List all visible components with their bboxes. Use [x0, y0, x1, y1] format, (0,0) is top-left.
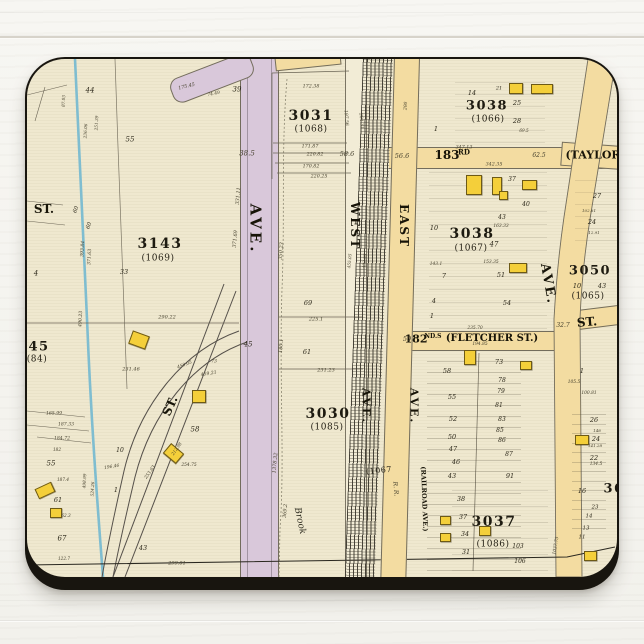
map-label-alt: (1086) — [477, 541, 510, 550]
map-label-meas: 143.1 — [430, 263, 443, 267]
map-label-meas: R. R. — [391, 481, 398, 496]
map-label-meas: 163.33 — [493, 225, 508, 229]
map-label-lot: 73 — [495, 359, 503, 366]
map-label-street: AVE. — [409, 388, 420, 424]
map-label-block: 3038 — [450, 227, 495, 241]
map-label-meas: 12.91 — [588, 231, 599, 235]
map-label-meas: 231.46 — [122, 368, 140, 373]
building-footprint — [509, 263, 527, 273]
map-label-block: 45 — [28, 341, 49, 354]
map-label-lot: 37 — [508, 177, 516, 183]
map-label-lot: 21 — [496, 87, 502, 92]
map-label-street: ND.S — [425, 334, 442, 340]
map-label-street: WEST — [349, 202, 361, 250]
map-label-lot: 52 — [449, 416, 457, 423]
map-label-meas: 342.35 — [486, 164, 503, 169]
map-label-meas: 172.38 — [303, 86, 320, 91]
map-label-meas: 235.70 — [467, 327, 482, 331]
map-label-meas: 184.72 — [54, 438, 70, 443]
map-label-lot: 4 — [432, 298, 436, 305]
map-label-meas: 87.03 — [62, 95, 67, 107]
map-label-lot: 55 — [47, 461, 56, 468]
map-label-street: AVE. — [248, 204, 263, 255]
building-footprint — [584, 551, 597, 561]
map-label-meas: 236.06 — [84, 124, 89, 139]
map-label-lot: 85 — [496, 428, 504, 434]
map-label-lot: 106 — [514, 559, 525, 565]
map-label-lot: 34 — [461, 531, 469, 538]
map-label-alt: (1066) — [472, 116, 505, 125]
building-footprint — [509, 83, 523, 94]
building-footprint — [440, 533, 451, 542]
map-label-street: AVE. — [361, 388, 372, 424]
building-footprint — [499, 191, 508, 200]
map-label-block: 3030 — [306, 407, 351, 421]
map-label-lot: 26 — [590, 417, 598, 424]
map-label-alt: (1085) — [311, 424, 344, 433]
mousepad: 3143(1069)3031(1068)3030(1085)3038(1066)… — [25, 57, 619, 590]
map-label-meas: 299.01 — [168, 562, 186, 567]
map-label-lot: 25 — [513, 100, 521, 107]
map-label-lot: 51 — [497, 272, 505, 279]
wood-plank-groove — [0, 36, 644, 38]
map-label-meas: 32.7 — [556, 323, 569, 329]
map-label-lot: 4 — [34, 271, 38, 278]
map-label-lot: 78 — [498, 378, 506, 384]
map-label-meas: 200 — [404, 102, 409, 111]
map-label-meas: 524.26 — [91, 482, 96, 497]
map-label-lot: 1 — [580, 368, 584, 375]
map-label-meas: 170.82 — [303, 166, 320, 171]
wood-plank-groove — [0, 620, 644, 621]
map-label-lot: 16 — [578, 488, 586, 495]
building-footprint — [520, 361, 532, 370]
map-label-lot: 14 — [468, 90, 476, 97]
map-label-alt: (84) — [27, 356, 47, 365]
map-label-meas: 347.13 — [456, 147, 473, 152]
map-label-meas: 225.1 — [309, 318, 323, 323]
map-label-meas: 153.35 — [483, 261, 498, 265]
map-label-lot: 81 — [495, 403, 503, 409]
map-label-meas: 38.5 — [239, 151, 255, 158]
map-label-street: (RAILROAD AVE.) — [420, 466, 429, 531]
map-label-lot: 37 — [459, 514, 467, 521]
map-label-lot: 67 — [58, 536, 67, 543]
map-label-alt: (1067) — [455, 245, 488, 254]
map-label-meas: 105.5 — [568, 381, 581, 385]
map-label-street: ST. — [576, 315, 597, 329]
map-label-lot: 46 — [452, 459, 460, 466]
map-label-block: 3050 — [569, 265, 611, 278]
map-label-lot: 10 — [573, 283, 581, 290]
map-label-lot: 43 — [448, 473, 456, 480]
map-label-meas: 197.56 — [342, 110, 348, 126]
lot-column-line — [473, 353, 479, 571]
wood-plank-groove — [0, 600, 644, 601]
map-label-lot: 28 — [513, 118, 521, 125]
map-label-meas: 490.23 — [79, 311, 84, 327]
building-footprint — [575, 435, 589, 445]
map-label-lot: 58 — [443, 368, 451, 375]
building-footprint — [440, 516, 451, 525]
map-label-meas: 393.84 — [81, 241, 86, 257]
map-label-lot: 13 — [583, 526, 590, 532]
map-label-lot: 61 — [303, 349, 311, 356]
map-label-lot: 14 — [586, 514, 593, 520]
map-label-meas: 122.7 — [58, 557, 70, 561]
map-label-lot: 31 — [462, 549, 470, 556]
map-label-meas: 165.99 — [46, 413, 62, 418]
map-label-lot: 24 — [588, 219, 596, 226]
map-label-lot: 55 — [448, 394, 456, 401]
map-label-alt: (1069) — [142, 255, 175, 264]
map-label-lot: 10 — [116, 448, 124, 454]
map-label-meas: 182 — [53, 448, 61, 452]
building-footprint — [192, 390, 206, 403]
building-footprint — [522, 180, 537, 190]
diagonal-street-edge — [113, 284, 224, 577]
building-footprint — [464, 350, 476, 365]
map-label-lot: 39 — [233, 87, 242, 94]
map-label-alt: (1065) — [572, 293, 605, 302]
map-label-meas: 220.82 — [307, 154, 324, 159]
map-label-lot: 38 — [457, 496, 465, 503]
map-label-lot: 7 — [442, 273, 446, 280]
map-label-lot: 40 — [522, 202, 530, 208]
map-label-lot: 69 — [304, 300, 312, 307]
map-label-lot: 54 — [503, 300, 511, 307]
map-label-lot: 103 — [512, 544, 523, 550]
building-footprint — [50, 508, 62, 518]
map-label-meas: 251.39 — [95, 116, 100, 131]
map-label-lot: 44 — [86, 88, 95, 95]
map-label-meas: 254.75 — [181, 464, 196, 468]
map-label-meas: 194.85 — [472, 343, 487, 347]
map-label-meas: 231.23 — [317, 369, 335, 374]
atlas-map-print: 3143(1069)3031(1068)3030(1085)3038(1066)… — [27, 59, 617, 577]
map-label-meas: 148 — [593, 429, 601, 433]
map-label-lot: 27 — [593, 193, 601, 200]
map-label-lot: 1 — [114, 487, 118, 494]
map-label-meas: 56.6 — [395, 153, 409, 160]
map-label-block: 3038 — [466, 100, 508, 113]
building-footprint — [466, 175, 482, 195]
lot-lines-left — [27, 85, 91, 443]
building-footprint — [531, 84, 553, 94]
map-label-meas: 62.3 — [61, 514, 70, 518]
map-label-lot: 22 — [590, 455, 598, 462]
map-label-meas: 50 — [403, 336, 411, 343]
map-label-lot: 1 — [434, 126, 438, 133]
map-label-meas: 141.28 — [588, 444, 602, 448]
map-label-lot: 43 — [498, 215, 506, 221]
map-label-lot: 55 — [126, 137, 135, 144]
map-label-lot: 43 — [139, 545, 147, 552]
map-label-block: 36 — [603, 483, 617, 496]
map-label-meas: 102.61 — [582, 209, 596, 213]
map-label-lot: 24 — [592, 436, 600, 443]
map-label-lot: 10 — [430, 225, 438, 232]
map-label-lot: 47 — [449, 446, 457, 453]
map-label-meas: 62.5 — [532, 153, 545, 159]
map-label-lot: 61 — [54, 497, 62, 504]
wood-table-surface: 3143(1069)3031(1068)3030(1085)3038(1066)… — [0, 0, 644, 644]
map-label-lot: 45 — [244, 342, 253, 349]
map-label-lot: 87 — [505, 452, 513, 458]
map-label-lot: 11 — [579, 535, 586, 541]
map-label-lot: 83 — [498, 417, 506, 423]
map-label-meas: 73 — [211, 361, 217, 366]
map-label-block: 3031 — [289, 109, 334, 123]
map-label-meas: 204.31 — [357, 113, 363, 129]
map-label-lot: 50 — [448, 434, 456, 441]
map-label-block: 3143 — [138, 237, 183, 251]
map-neatline — [27, 547, 615, 565]
map-label-lot: 23 — [592, 505, 599, 511]
map-label-lot: 33 — [120, 269, 128, 276]
map-label-meas: 290.22 — [158, 316, 176, 321]
map-label-street: (FLETCHER ST.) — [446, 334, 538, 344]
map-label-meas: 171.87 — [302, 146, 319, 151]
map-label-meas: 187.33 — [58, 424, 74, 429]
map-label-lot: 43 — [598, 283, 606, 290]
map-label-lot: 79 — [497, 389, 505, 395]
map-label-meas: 371.63 — [88, 249, 93, 265]
map-label-meas: 187.4 — [57, 478, 69, 482]
curved-road-edge — [113, 342, 247, 577]
map-label-street: EAST — [398, 204, 410, 248]
map-label-meas: 134.5 — [590, 463, 603, 467]
map-label-lot: 47 — [490, 242, 499, 249]
wood-plank-groove — [0, 12, 644, 13]
map-label-lot: 91 — [506, 473, 514, 480]
map-label-lot: 58 — [191, 427, 200, 434]
map-label-street: (TAYLOR — [565, 150, 617, 161]
map-label-alt: (1068) — [295, 126, 328, 135]
map-label-block: 3037 — [472, 515, 517, 529]
map-label-lot: 1 — [430, 313, 434, 320]
map-label-meas: 220.25 — [311, 176, 328, 181]
map-label-meas: 58.6 — [340, 151, 354, 158]
map-label-meas: 498.99 — [83, 474, 88, 489]
brook-dotted-line — [279, 79, 287, 577]
map-label-street: ST. — [34, 203, 54, 215]
map-label-meas: 69.5 — [519, 129, 528, 133]
map-label-meas: 100.81 — [581, 392, 596, 396]
block-boundary — [115, 59, 127, 389]
map-label-lot: 86 — [498, 438, 506, 444]
